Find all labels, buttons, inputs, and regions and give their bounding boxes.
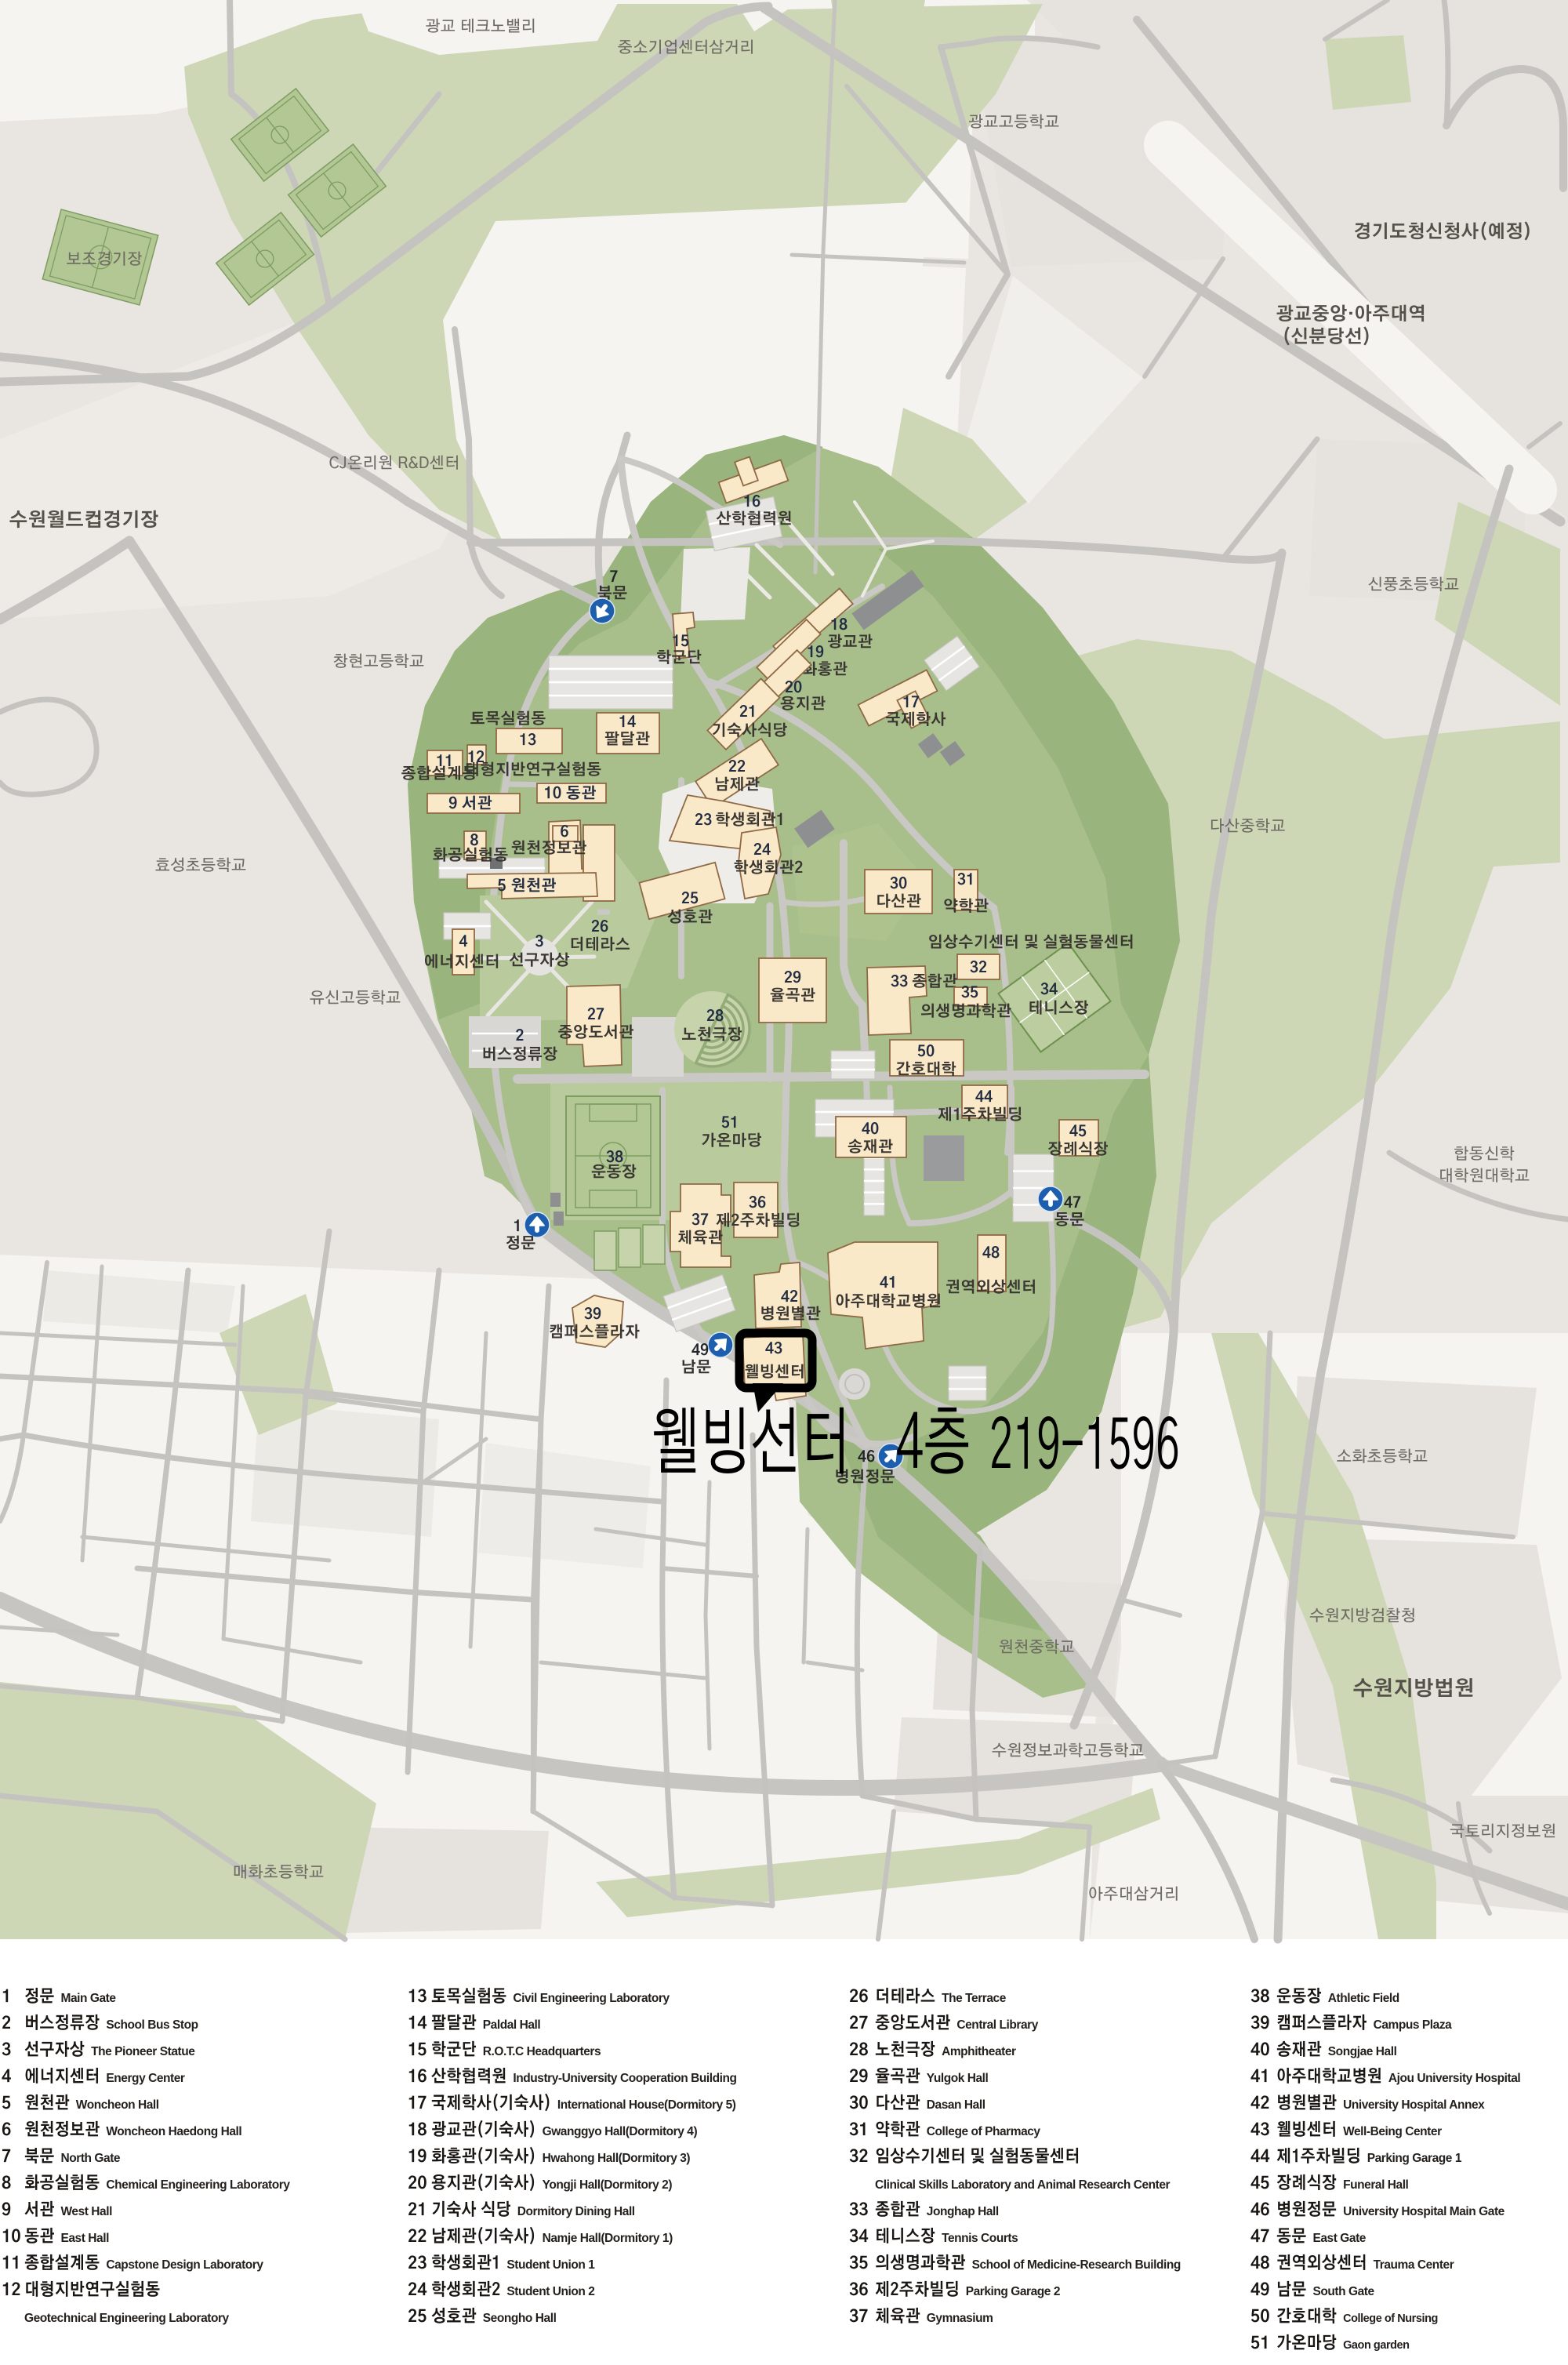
- svg-text:Woncheon Haedong Hall: Woncheon Haedong Hall: [106, 2125, 241, 2138]
- svg-text:Chemical Engineering Laborator: Chemical Engineering Laboratory: [106, 2178, 290, 2192]
- svg-text:Dasan Hall: Dasan Hall: [927, 2098, 985, 2112]
- svg-text:Yongji Hall(Dormitory 2): Yongji Hall(Dormitory 2): [543, 2178, 673, 2192]
- svg-text:Capstone Design Laboratory: Capstone Design Laboratory: [106, 2258, 263, 2272]
- svg-text:Clinical Skills Laboratory and: Clinical Skills Laboratory and Animal Re…: [875, 2178, 1171, 2192]
- svg-text:Paldal Hall: Paldal Hall: [483, 2018, 541, 2032]
- svg-text:Woncheon Hall: Woncheon Hall: [76, 2098, 159, 2112]
- svg-text:Dormitory Dining Hall: Dormitory Dining Hall: [517, 2205, 635, 2218]
- svg-text:Civil Engineering Laboratory: Civil Engineering Laboratory: [513, 1992, 670, 2005]
- svg-text:Gymnasium: Gymnasium: [927, 2312, 993, 2325]
- svg-text:Student Union 2: Student Union 2: [506, 2285, 594, 2298]
- svg-text:Amphitheater: Amphitheater: [942, 2045, 1016, 2058]
- svg-text:College of Nursing: College of Nursing: [1343, 2312, 1438, 2325]
- svg-text:Gaon garden: Gaon garden: [1343, 2339, 1409, 2352]
- svg-text:Yulgok Hall: Yulgok Hall: [927, 2072, 989, 2085]
- svg-text:Parking Garage 1: Parking Garage 1: [1367, 2152, 1462, 2165]
- svg-text:International House(Dormitory: International House(Dormitory 5): [557, 2098, 736, 2112]
- svg-text:Geotechnical Engineering Labor: Geotechnical Engineering Laboratory: [24, 2312, 230, 2325]
- svg-text:Main Gate: Main Gate: [61, 1992, 117, 2005]
- svg-text:Funeral Hall: Funeral Hall: [1343, 2178, 1408, 2192]
- svg-text:Energy Center: Energy Center: [106, 2072, 185, 2085]
- svg-text:Tennis Courts: Tennis Courts: [942, 2232, 1018, 2245]
- svg-text:Seongho Hall: Seongho Hall: [483, 2312, 557, 2325]
- svg-text:Trauma Center: Trauma Center: [1374, 2258, 1454, 2272]
- svg-text:College of Pharmacy: College of Pharmacy: [927, 2125, 1041, 2138]
- svg-text:Industry-University Cooperatio: Industry-University Cooperation Building: [513, 2072, 736, 2085]
- svg-text:Student Union 1: Student Union 1: [506, 2258, 595, 2272]
- svg-text:East Hall: East Hall: [61, 2232, 110, 2245]
- svg-text:Well-Being Center: Well-Being Center: [1343, 2125, 1442, 2138]
- svg-text:Parking Garage 2: Parking Garage 2: [966, 2285, 1060, 2298]
- svg-text:School of Medicine-Research Bu: School of Medicine-Research Building: [972, 2258, 1181, 2272]
- svg-text:Jonghap Hall: Jonghap Hall: [927, 2205, 999, 2218]
- svg-text:South Gate: South Gate: [1313, 2285, 1375, 2298]
- svg-text:The Pioneer Statue: The Pioneer Statue: [91, 2045, 195, 2058]
- svg-text:Gwanggyo Hall(Dormitory 4): Gwanggyo Hall(Dormitory 4): [543, 2125, 698, 2138]
- svg-text:R.O.T.C Headquarters: R.O.T.C Headquarters: [483, 2045, 601, 2058]
- svg-text:Hwahong Hall(Dormitory 3): Hwahong Hall(Dormitory 3): [543, 2152, 691, 2165]
- svg-text:Namje Hall(Dormitory 1): Namje Hall(Dormitory 1): [543, 2232, 673, 2245]
- svg-text:University Hospital Main Gate: University Hospital Main Gate: [1343, 2205, 1505, 2218]
- svg-text:Songjae Hall: Songjae Hall: [1328, 2045, 1397, 2058]
- svg-text:The Terrace: The Terrace: [942, 1992, 1007, 2005]
- svg-text:Athletic Field: Athletic Field: [1328, 1992, 1399, 2005]
- svg-text:North Gate: North Gate: [61, 2152, 121, 2165]
- svg-text:East Gate: East Gate: [1313, 2232, 1367, 2245]
- svg-text:School Bus Stop: School Bus Stop: [106, 2018, 198, 2032]
- svg-text:Central Library: Central Library: [956, 2018, 1038, 2032]
- svg-text:Campus Plaza: Campus Plaza: [1374, 2018, 1453, 2032]
- svg-text:University Hospital Annex: University Hospital Annex: [1343, 2098, 1485, 2112]
- svg-text:Ajou University Hospital: Ajou University Hospital: [1388, 2072, 1520, 2085]
- svg-text:West Hall: West Hall: [61, 2205, 113, 2218]
